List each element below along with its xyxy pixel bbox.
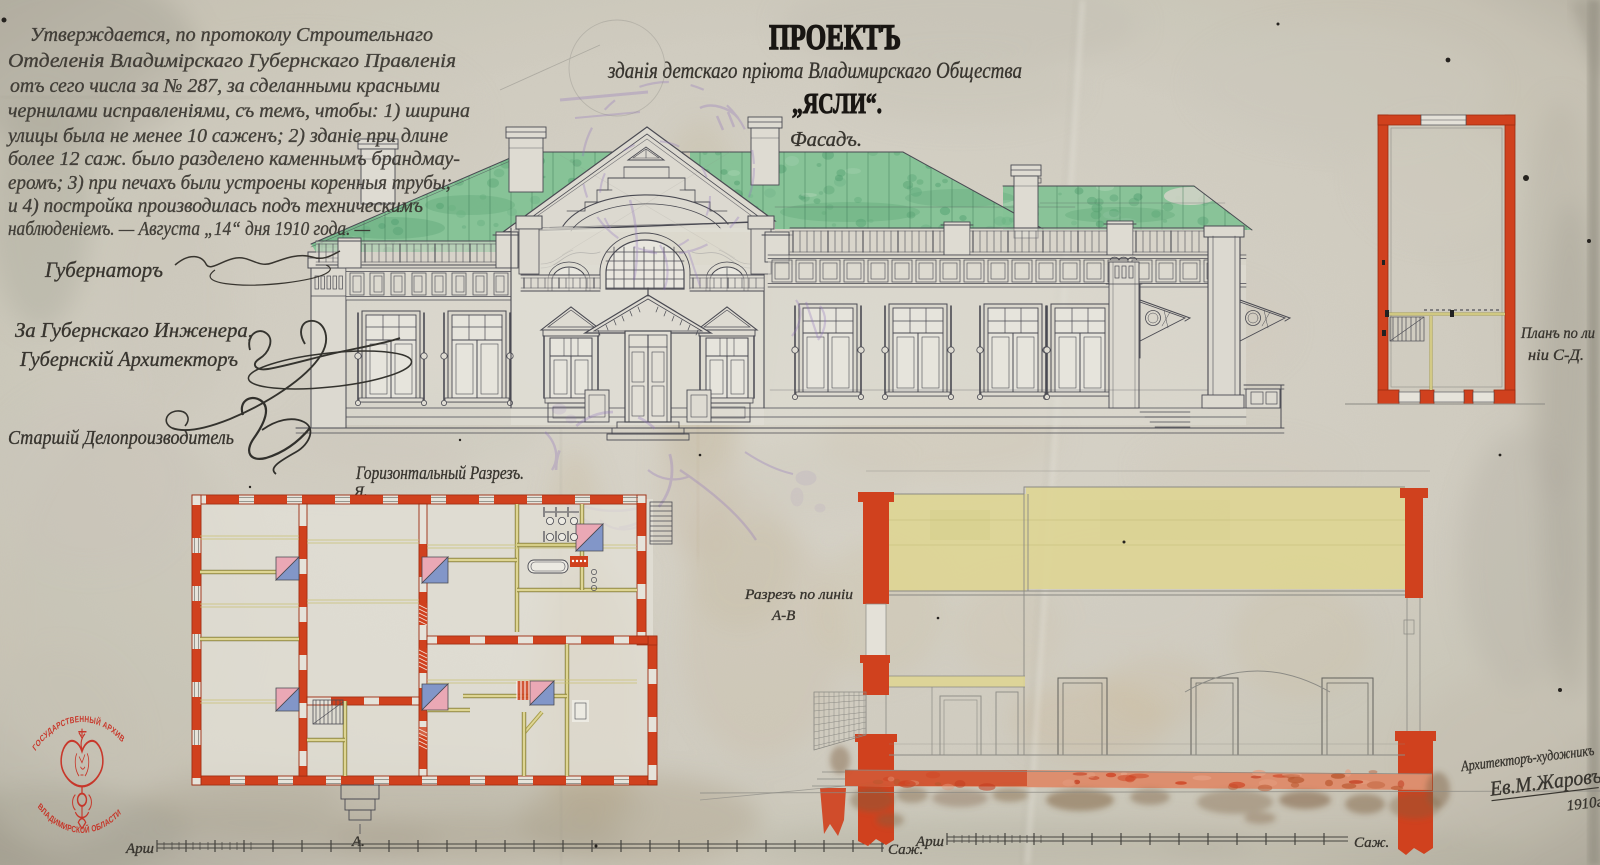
- svg-text:отъ сего числа за № 287, за сд: отъ сего числа за № 287, за сделанными к…: [10, 76, 440, 97]
- svg-text:Губернаторъ: Губернаторъ: [44, 257, 163, 282]
- svg-text:Планъ по ли: Планъ по ли: [1520, 325, 1595, 342]
- svg-text:Горизонтальный Разрезъ.: Горизонтальный Разрезъ.: [355, 463, 524, 484]
- svg-text:ніи С-Д.: ніи С-Д.: [1528, 347, 1584, 364]
- svg-text:Разрезъ по линіи: Разрезъ по линіи: [744, 587, 853, 603]
- svg-text:Старшій Делопроизводитель: Старшій Делопроизводитель: [8, 427, 234, 449]
- svg-text:„ЯСЛИ“.: „ЯСЛИ“.: [792, 89, 882, 120]
- svg-text:и 4) постройка производилась п: и 4) постройка производилась подъ технич…: [8, 196, 423, 217]
- svg-text:ПРОЕКТЪ: ПРОЕКТЪ: [769, 17, 901, 57]
- svg-text:Арш: Арш: [915, 834, 944, 850]
- svg-text:более 12 саж. было разделено к: более 12 саж. было разделено каменнымъ б…: [8, 149, 460, 170]
- svg-text:Утверждается, по протоколу Стр: Утверждается, по протоколу Строительнаго: [30, 25, 433, 46]
- svg-text:Фасадъ.: Фасадъ.: [790, 127, 862, 151]
- svg-text:Губернскій Архитекторъ: Губернскій Архитекторъ: [19, 347, 238, 371]
- svg-text:За Губернскаго Инженера,: За Губернскаго Инженера,: [15, 318, 253, 342]
- svg-text:Отделенія Владимірскаго Губерн: Отделенія Владимірскаго Губернскаго Прав…: [8, 51, 456, 72]
- svg-text:Саж.: Саж.: [1354, 835, 1389, 851]
- svg-text:А-В: А-В: [771, 608, 795, 624]
- svg-text:чернилами исправленіями, съ те: чернилами исправленіями, съ темъ, чтобы:…: [8, 101, 470, 122]
- svg-text:еромъ; 3) при печахъ были устр: еромъ; 3) при печахъ были устроены корен…: [8, 173, 452, 194]
- svg-text:Арш: Арш: [125, 841, 154, 857]
- svg-text:наблюденіемъ. — Августа „14“ д: наблюденіемъ. — Августа „14“ дня 1910 го…: [8, 219, 371, 240]
- svg-text:зданія детскаго пріюта Владими: зданія детскаго пріюта Владимирскаго Общ…: [607, 58, 1022, 83]
- svg-text:улицы была не менее 10 саженъ;: улицы была не менее 10 саженъ; 2) зданіе…: [6, 126, 448, 147]
